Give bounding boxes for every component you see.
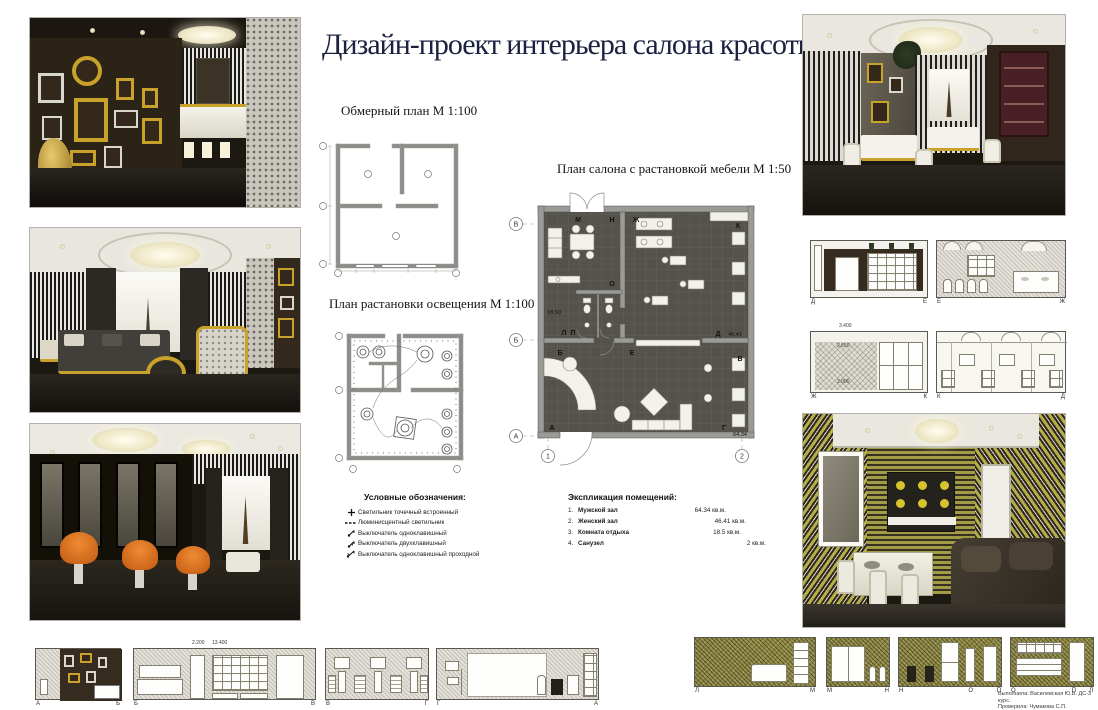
axis-label: А xyxy=(514,434,519,441)
legend-item: Выключатель одноклавишный проходной xyxy=(344,549,579,560)
plan-area: 46.41 xyxy=(728,332,742,338)
curtain xyxy=(206,468,222,564)
styling-chair xyxy=(176,546,210,574)
presentation-board: Дизайн-проект интерьера салона красоты xyxy=(0,0,1098,710)
floor xyxy=(803,165,1065,215)
window xyxy=(929,69,969,121)
plan-letter: О xyxy=(609,281,615,288)
elevation-o-p-l: О П Л xyxy=(1010,637,1094,687)
mirror xyxy=(116,462,140,548)
ceiling-light xyxy=(92,428,158,452)
window xyxy=(222,476,270,550)
elevation-a-b: А Б xyxy=(35,648,121,700)
door xyxy=(196,58,230,104)
elevation-m-n: М Н xyxy=(826,637,890,687)
plan-letter: Е xyxy=(630,350,635,357)
curtain xyxy=(270,468,288,564)
polish-shelf xyxy=(999,51,1049,137)
hanging-plant xyxy=(909,243,914,251)
measure-plan-label: Обмерный план М 1:100 xyxy=(341,103,477,119)
axis-label: В xyxy=(514,222,519,229)
styling-chair xyxy=(122,540,158,570)
axis-label: 2 xyxy=(740,454,744,461)
legend-title: Условные обозначения: xyxy=(344,492,579,502)
elevation-k-d: К Д xyxy=(936,331,1066,393)
plan-area: 18.50 xyxy=(547,310,561,316)
plan-area: 64.34 xyxy=(733,432,747,438)
axis-label: Б xyxy=(514,338,519,345)
manicure-table xyxy=(861,135,917,161)
eiffel-tower-view xyxy=(240,496,251,544)
credits-line-reviewer: Проверила: Чумакова С.П. xyxy=(998,704,1098,710)
legend-item: Выключатель одноклавишный xyxy=(344,528,579,539)
hanging-plant xyxy=(869,243,874,251)
plan-letter: Б xyxy=(557,350,562,357)
elevation-v-g: В Г xyxy=(325,648,429,700)
floor xyxy=(30,374,300,412)
credits: Выполнила: Василевская Ю.В. ДС-3 курс. П… xyxy=(998,691,1098,710)
switch-double-icon xyxy=(344,540,358,548)
elevation-d-e: Д Е xyxy=(810,240,928,298)
plan-letter: К xyxy=(736,223,741,230)
door xyxy=(981,464,1011,540)
explication: Экспликация помещений: 1. Мужской зал 64… xyxy=(568,492,783,551)
plan-letter: Г xyxy=(722,425,726,432)
render-mens-hall xyxy=(30,424,300,620)
furniture-plan-drawing: М Н Ж К О Л П Б Е Д В А Г 18.50 46.41 64… xyxy=(502,192,760,467)
elevation-g-a: 12.600 Г А xyxy=(436,648,599,700)
hanging-plant xyxy=(889,243,894,251)
render-entrance-hall xyxy=(30,18,300,207)
legend-item: Светильник точечный встроенный xyxy=(344,507,579,518)
explication-row: 1. Мужской зал 64.34 кв.м. xyxy=(568,507,783,518)
spot-light-icon xyxy=(344,508,358,517)
elevation-b-v: 2.200 13.400 Б В xyxy=(133,648,316,700)
legend: Условные обозначения: Светильник точечны… xyxy=(344,492,579,560)
axis-label: 1 xyxy=(546,454,550,461)
mirror xyxy=(154,462,178,548)
elevation-zh-k: 3.400 2.650 2.000 Ж К xyxy=(810,331,928,393)
measure-plan-drawing xyxy=(316,134,466,278)
fluorescent-light-icon xyxy=(344,521,358,525)
explication-row: 2. Женский зал 46.41 кв.м. xyxy=(568,518,783,529)
credits-line-author: Выполнила: Василевская Ю.В. ДС-3 курс. xyxy=(998,691,1098,704)
chair xyxy=(983,139,1001,163)
chair xyxy=(843,143,861,167)
plan-letter: Д xyxy=(716,331,721,338)
dining-table xyxy=(853,552,933,596)
styling-chair xyxy=(60,532,98,564)
plan-letter: М xyxy=(575,217,581,224)
plan-letter: В xyxy=(737,356,742,363)
furniture-plan-label: План салона с растановкой мебели М 1:50 xyxy=(557,161,791,177)
lighting-plan-drawing xyxy=(333,322,470,474)
plan-letter: А xyxy=(549,425,554,432)
ceiling-light xyxy=(130,242,200,268)
kitchen-cabinets xyxy=(887,472,955,532)
legend-item: Люминисцентный светильник xyxy=(344,518,579,529)
eiffel-tower-view xyxy=(944,81,954,117)
render-lounge xyxy=(30,228,300,412)
elevation-e-zh: Е Ж xyxy=(936,240,1066,298)
explication-row: 4. Санузел 2 кв.м. xyxy=(568,540,783,551)
lace-partition xyxy=(246,18,300,207)
render-womens-hall xyxy=(803,15,1065,215)
manicure-stool xyxy=(226,552,260,572)
explication-row: 3. Комната отдыха 18.5 кв.м. xyxy=(568,529,783,540)
elevation-n-o-p: Н О П xyxy=(898,637,1002,687)
mirror xyxy=(819,452,863,546)
switch-pass-icon xyxy=(344,550,358,558)
legend-item: Выключатель двухклавишный xyxy=(344,539,579,550)
lace-partition xyxy=(246,258,274,368)
plan-letter: Ж xyxy=(632,217,640,224)
mirror xyxy=(40,462,64,548)
plan-letter: Л xyxy=(562,330,567,337)
render-staff-room xyxy=(803,414,1065,627)
reception-desk xyxy=(180,104,246,138)
plan-letter: Н xyxy=(609,217,614,224)
page-title: Дизайн-проект интерьера салона красоты xyxy=(322,28,800,62)
chair xyxy=(837,560,855,594)
ceiling-light xyxy=(178,26,236,44)
explication-title: Экспликация помещений: xyxy=(568,492,783,502)
switch-single-icon xyxy=(344,529,358,537)
floor xyxy=(30,168,246,207)
elevation-l-m: Л М xyxy=(694,637,816,687)
ceiling-light xyxy=(915,419,959,443)
floor xyxy=(803,604,1065,627)
chair xyxy=(869,570,887,606)
mirror-stations xyxy=(30,454,192,560)
manicure-table xyxy=(927,127,979,151)
plan-letter: П xyxy=(570,330,575,337)
